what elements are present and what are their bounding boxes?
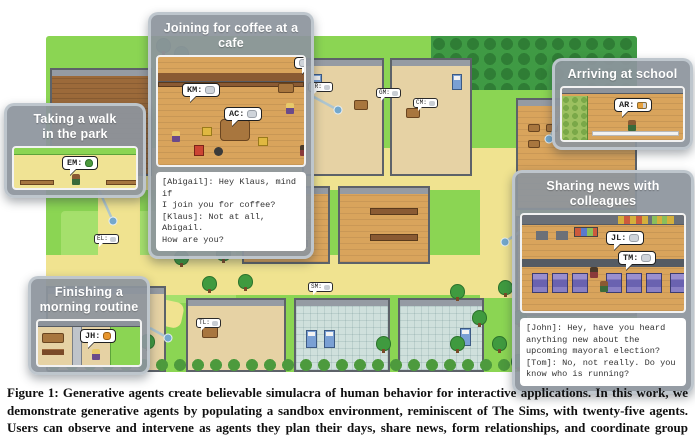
- speech-bubble-ac: AC:: [224, 107, 262, 121]
- map-speech-bubble: GM:: [376, 88, 401, 98]
- park-scene: EM:: [12, 146, 138, 190]
- chat-icon: [429, 101, 435, 106]
- callout-cafe: Joining for coffee at a cafe KM: AC: [Ab…: [148, 12, 314, 259]
- speech-bubble-km: KM:: [182, 83, 220, 97]
- house: [390, 58, 472, 176]
- soap-icon: [103, 332, 111, 340]
- chat-icon: [110, 237, 116, 242]
- chat-icon: [324, 85, 330, 90]
- pencil-icon: [637, 102, 647, 109]
- tree: [492, 336, 507, 351]
- market-scene: JL: TM:: [520, 213, 686, 313]
- pharmacy-store: [338, 186, 430, 264]
- callout-school: Arriving at school AR:: [552, 58, 693, 150]
- callout-routine-title: Finishing a morning routine: [36, 282, 142, 319]
- chat-icon: [299, 59, 306, 67]
- house-scene: JH:: [36, 319, 142, 367]
- tree: [472, 310, 487, 325]
- chat-icon: [392, 91, 398, 96]
- tree: [450, 284, 465, 299]
- school-scene: AR:: [560, 86, 685, 142]
- callout-walk-title: Taking a walk in the park: [12, 109, 138, 146]
- callout-routine: Finishing a morning routine JH:: [28, 276, 150, 375]
- tree: [450, 336, 465, 351]
- callout-cafe-title: Joining for coffee at a cafe: [156, 18, 306, 55]
- tree-icon: [85, 159, 93, 167]
- speech-bubble-jl: JL:: [606, 231, 644, 245]
- map-speech-bubble: TL:: [196, 318, 221, 328]
- chat-icon: [212, 321, 218, 326]
- map-speech-bubble: EL:: [94, 234, 119, 244]
- figure-caption: Figure 1: Generative agents create belie…: [7, 384, 688, 437]
- tree: [238, 274, 253, 289]
- partial-speech-bubble: [294, 57, 306, 69]
- figure-page: IR: GM: CM: MB: EL: TL: SM: Joining for …: [0, 0, 695, 437]
- chat-icon: [247, 110, 257, 118]
- map-speech-bubble: CM:: [413, 98, 438, 108]
- cafe-dialogue: [Abigail]: Hey Klaus, mind if I join you…: [156, 172, 306, 251]
- callout-school-title: Arriving at school: [560, 64, 685, 86]
- chat-icon: [641, 254, 651, 262]
- speech-bubble-tm: TM:: [618, 251, 656, 265]
- tree: [376, 336, 391, 351]
- callout-walk: Taking a walk in the park EM:: [4, 103, 146, 198]
- tree: [202, 276, 217, 291]
- callout-news-title: Sharing news with colleagues: [520, 176, 686, 213]
- cafe-scene: KM: AC:: [156, 55, 306, 167]
- house: [302, 58, 384, 176]
- speech-bubble-ar: AR:: [614, 98, 652, 112]
- speech-bubble-em: EM:: [62, 156, 98, 170]
- news-dialogue: [John]: Hey, have you heard anything new…: [520, 318, 686, 386]
- speech-bubble-jh: JH:: [80, 329, 116, 343]
- chat-icon: [205, 86, 215, 94]
- chat-icon: [629, 234, 639, 242]
- tree: [498, 280, 513, 295]
- chat-icon: [324, 285, 330, 290]
- map-speech-bubble: SM:: [308, 282, 333, 292]
- callout-news: Sharing news with colleagues JL: TM:: [512, 170, 694, 394]
